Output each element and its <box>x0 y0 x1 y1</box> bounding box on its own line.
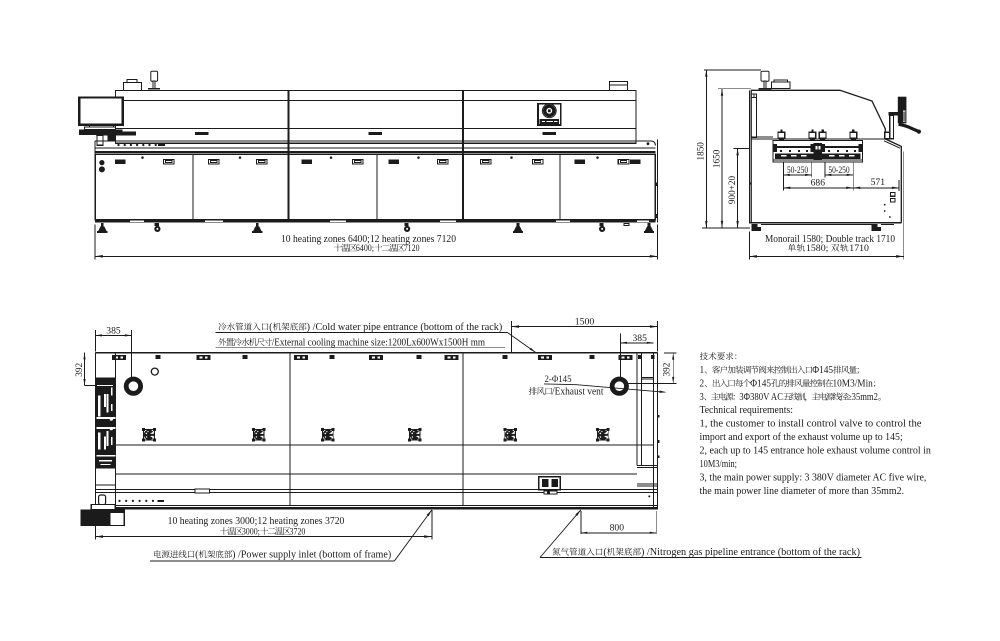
svg-text:1: 1 <box>700 365 705 376</box>
svg-text:50-250: 50-250 <box>787 165 808 176</box>
svg-text:392: 392 <box>74 363 84 377</box>
svg-text:/Exhaust vent: /Exhaust vent <box>552 386 604 397</box>
svg-text:/External cooling machine size: /External cooling machine size:1200Lx600… <box>272 337 485 348</box>
svg-text:3000;: 3000; <box>242 526 260 536</box>
svg-text:Technical requirements:: Technical requirements: <box>700 405 793 416</box>
svg-text:7120: 7120 <box>404 243 420 253</box>
svg-text:800: 800 <box>610 523 625 534</box>
svg-text:10M3/Min: 10M3/Min <box>833 378 874 389</box>
svg-text:2: 2 <box>700 378 705 389</box>
svg-text:1650: 1650 <box>711 149 721 168</box>
svg-text:3Φ380V AC: 3Φ380V AC <box>739 392 783 403</box>
svg-text:50-250: 50-250 <box>828 165 849 176</box>
svg-text:10M3/min;: 10M3/min; <box>700 459 738 470</box>
svg-text:385: 385 <box>633 333 648 344</box>
svg-text:1580;: 1580; <box>806 243 831 253</box>
svg-text:import and export of the exhau: import and export of the exhaust volume … <box>700 432 903 443</box>
svg-text:1500: 1500 <box>575 317 595 328</box>
svg-text:) /Power supply inlet (bottom: ) /Power supply inlet (bottom of frame) <box>232 549 391 560</box>
svg-text:≥35mm2: ≥35mm2 <box>847 392 878 403</box>
svg-text:) /Cold water pipe entrance (b: ) /Cold water pipe entrance (bottom of t… <box>307 322 503 333</box>
svg-text:1710: 1710 <box>849 243 869 253</box>
svg-text:2-Φ145: 2-Φ145 <box>545 374 572 385</box>
svg-text:6400;: 6400; <box>356 243 374 253</box>
svg-text:the main power line diameter o: the main power line diameter of more tha… <box>700 486 905 497</box>
svg-text:392: 392 <box>662 362 672 376</box>
svg-text:3, the main power supply: 3 38: 3, the main power supply: 3 380V diamete… <box>700 472 927 483</box>
svg-text:2, each up to 145 entrance hol: 2, each up to 145 entrance hole exhaust … <box>700 446 932 457</box>
svg-text:(: ( <box>269 322 273 333</box>
svg-text:) /Nitrogen gas pipeline entra: ) /Nitrogen gas pipeline entrance (botto… <box>641 547 860 558</box>
svg-text:Φ145: Φ145 <box>812 365 833 376</box>
svg-text:Φ145: Φ145 <box>750 378 771 389</box>
svg-text:686: 686 <box>811 178 826 189</box>
svg-text:900+20: 900+20 <box>727 176 737 205</box>
svg-text:(: ( <box>603 547 607 558</box>
svg-text:385: 385 <box>106 325 121 336</box>
svg-text:3: 3 <box>700 392 704 403</box>
svg-text:(: ( <box>195 549 199 560</box>
svg-text:1, the customer to install con: 1, the customer to install control valve… <box>700 419 922 430</box>
svg-text:571: 571 <box>871 177 886 188</box>
svg-text:1850: 1850 <box>696 142 706 161</box>
svg-text:3720: 3720 <box>290 526 306 536</box>
